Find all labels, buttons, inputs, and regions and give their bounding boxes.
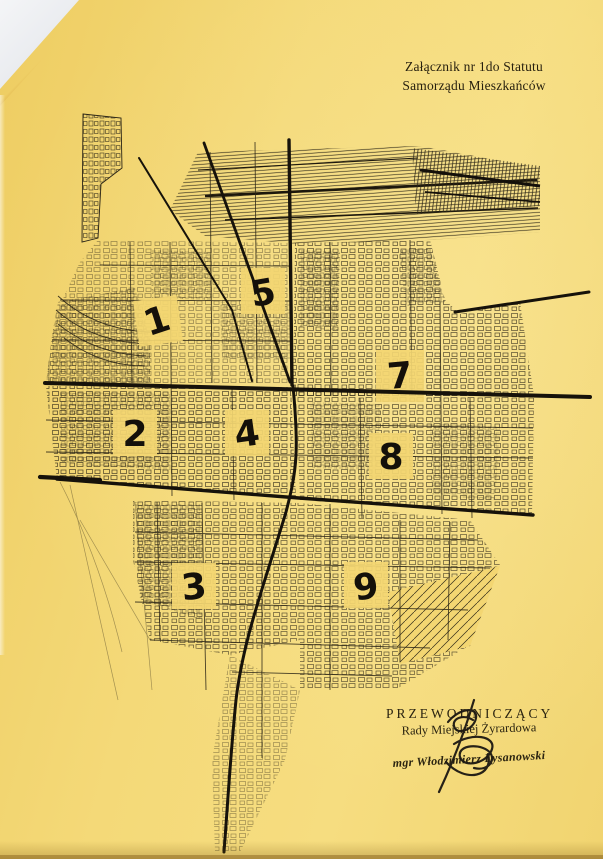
district-label-3: 3: [179, 566, 208, 609]
footer-signature-block: PRZEWODNICZĄCY Rady Miejskiej Żyrardowa …: [386, 706, 552, 767]
district-label-7: 7: [386, 355, 415, 398]
district-label-8: 8: [378, 437, 403, 478]
district-label-2: 2: [122, 414, 147, 455]
page-bottom-edge: [0, 855, 603, 859]
footer-role-subtitle: Rady Miejskiej Żyrardowa: [386, 720, 552, 739]
scanned-page: Załącznik nr 1do Statutu Samorządu Miesz…: [0, 0, 603, 859]
